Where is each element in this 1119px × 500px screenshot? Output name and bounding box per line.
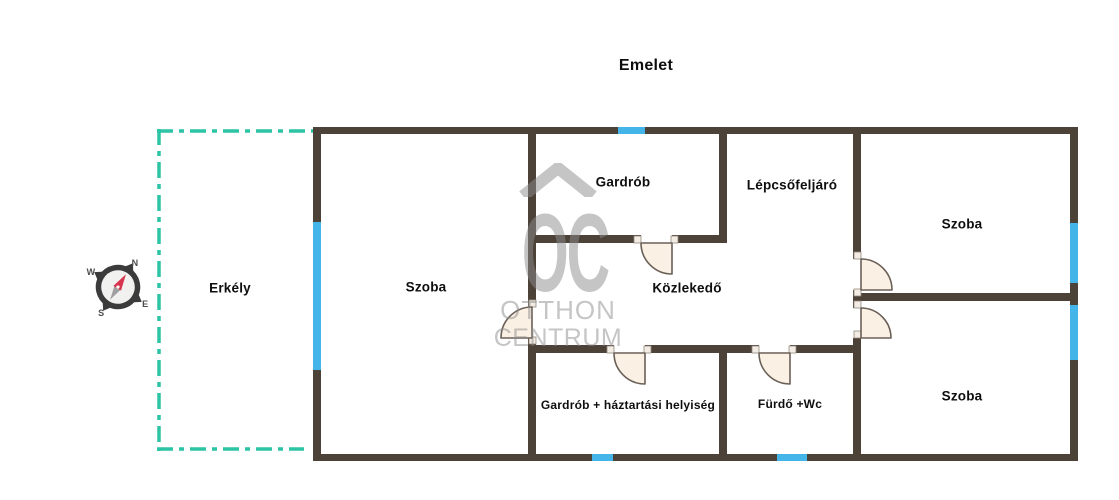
compass-spike-e <box>130 291 146 308</box>
compass-pivot <box>116 285 120 289</box>
room-label-gardrob-haztartasi: Gardrób + háztartási helyiség <box>541 398 715 412</box>
compass-spike-s <box>97 299 114 315</box>
wall-exterior-bottom <box>313 454 1078 461</box>
compass-needle-north <box>113 272 129 291</box>
compass-label-s: S <box>98 308 104 318</box>
window-right-upper <box>1070 223 1078 283</box>
otthon-centrum-watermark: OC OTTHON CENTRUM <box>492 163 624 351</box>
door-storage-room <box>614 353 645 384</box>
compass-icon: N W S E <box>83 252 153 322</box>
window-bottom-right <box>777 454 807 461</box>
floor-plan-canvas: Emelet <box>0 0 1119 500</box>
wall-hall-bottom-c <box>790 345 853 353</box>
room-label-szoba-bottom-right: Szoba <box>942 389 983 404</box>
compass-label-w: W <box>87 267 96 277</box>
door-jamb <box>854 331 861 338</box>
wall-right-long-middle <box>853 290 861 308</box>
room-label-furdo-wc: Fürdő +Wc <box>758 397 822 411</box>
compass-spike-n <box>122 260 139 276</box>
door-szoba-top-right <box>861 259 892 290</box>
wall-inner-left-lower <box>528 338 536 454</box>
window-left-wall <box>313 222 321 370</box>
door-szoba-bottom-right <box>861 308 891 338</box>
door-bathroom <box>759 353 790 384</box>
window-right-lower <box>1070 305 1078 360</box>
wall-gardrob-stairs-divider <box>719 134 727 243</box>
compass-ring <box>91 260 145 314</box>
compass-label-n: N <box>132 258 139 268</box>
page-title: Emelet <box>619 57 673 75</box>
compass-label-e: E <box>142 299 148 309</box>
wall-right-long-upper <box>853 134 861 259</box>
room-label-lepcsofeljaro: Lépcsőfeljáró <box>747 178 837 193</box>
watermark-line2: CENTRUM <box>492 326 624 351</box>
wall-storage-bath-divider <box>719 353 727 454</box>
room-label-szoba-top-right: Szoba <box>942 217 983 232</box>
compass-needle-south <box>107 284 122 301</box>
wall-right-long-lower <box>853 338 861 454</box>
window-top-wall <box>618 127 645 134</box>
door-gardrob <box>641 243 672 274</box>
wall-exterior-right <box>1070 127 1078 461</box>
wall-exterior-top <box>313 127 1078 134</box>
room-label-kozlekedo: Közlekedő <box>652 281 721 296</box>
room-label-erkely: Erkély <box>209 281 251 296</box>
room-label-szoba-left: Szoba <box>406 280 447 295</box>
watermark-monogram: OC <box>522 199 595 283</box>
room-label-gardrob: Gardrób <box>596 175 651 190</box>
wall-hall-bottom-b <box>645 345 759 353</box>
window-bottom-left <box>592 454 613 461</box>
compass-spike-w <box>91 266 107 283</box>
wall-right-rooms-divider <box>861 293 1070 301</box>
